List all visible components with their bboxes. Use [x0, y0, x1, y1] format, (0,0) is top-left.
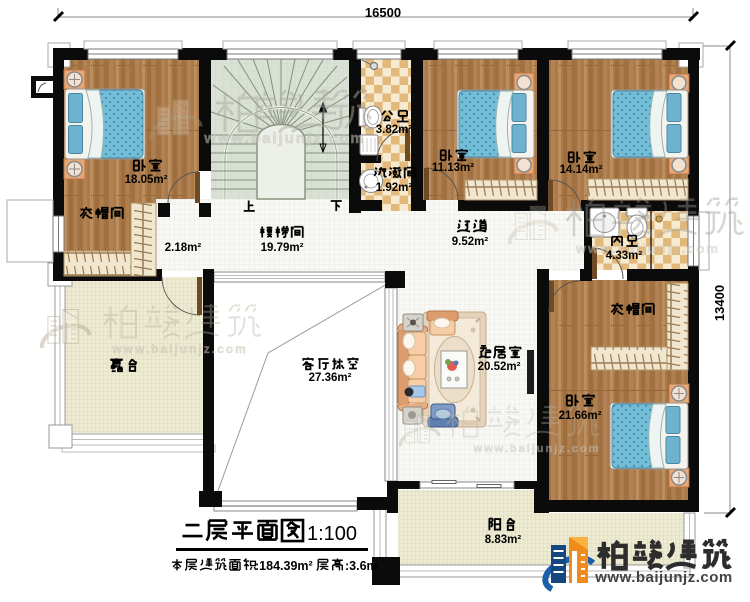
svg-text:13400: 13400 — [712, 285, 727, 321]
svg-text:4.33m²: 4.33m² — [606, 250, 643, 262]
svg-text:14.14m²: 14.14m² — [560, 164, 603, 176]
svg-text:9.52m²: 9.52m² — [452, 236, 489, 248]
svg-text:www.baijunjz.com: www.baijunjz.com — [203, 130, 365, 147]
svg-text:21.66m²: 21.66m² — [559, 410, 602, 422]
svg-text:19.79m²: 19.79m² — [261, 242, 304, 254]
svg-text:20.52m²: 20.52m² — [478, 361, 521, 373]
svg-text:www.baijunjz.com: www.baijunjz.com — [111, 342, 248, 356]
svg-text:11.13m²: 11.13m² — [432, 162, 474, 174]
svg-text:3.82m²: 3.82m² — [376, 124, 413, 136]
svg-text:www.baijunjz.com: www.baijunjz.com — [594, 569, 732, 586]
svg-text:1:100: 1:100 — [307, 523, 357, 545]
svg-text:www.baijunjz.com: www.baijunjz.com — [575, 241, 720, 256]
svg-text:1.92m²: 1.92m² — [376, 182, 413, 194]
svg-text:8.83m²: 8.83m² — [485, 534, 522, 546]
svg-text:www.baijunjz.com: www.baijunjz.com — [473, 443, 601, 455]
svg-text::184.39m²: :184.39m² — [255, 559, 313, 573]
svg-text::3.6m: :3.6m — [345, 559, 378, 573]
svg-text:27.36m²: 27.36m² — [309, 372, 352, 384]
svg-text:18.05m²: 18.05m² — [125, 174, 168, 186]
svg-text:16500: 16500 — [365, 5, 401, 20]
svg-text:2.18m²: 2.18m² — [165, 242, 202, 254]
